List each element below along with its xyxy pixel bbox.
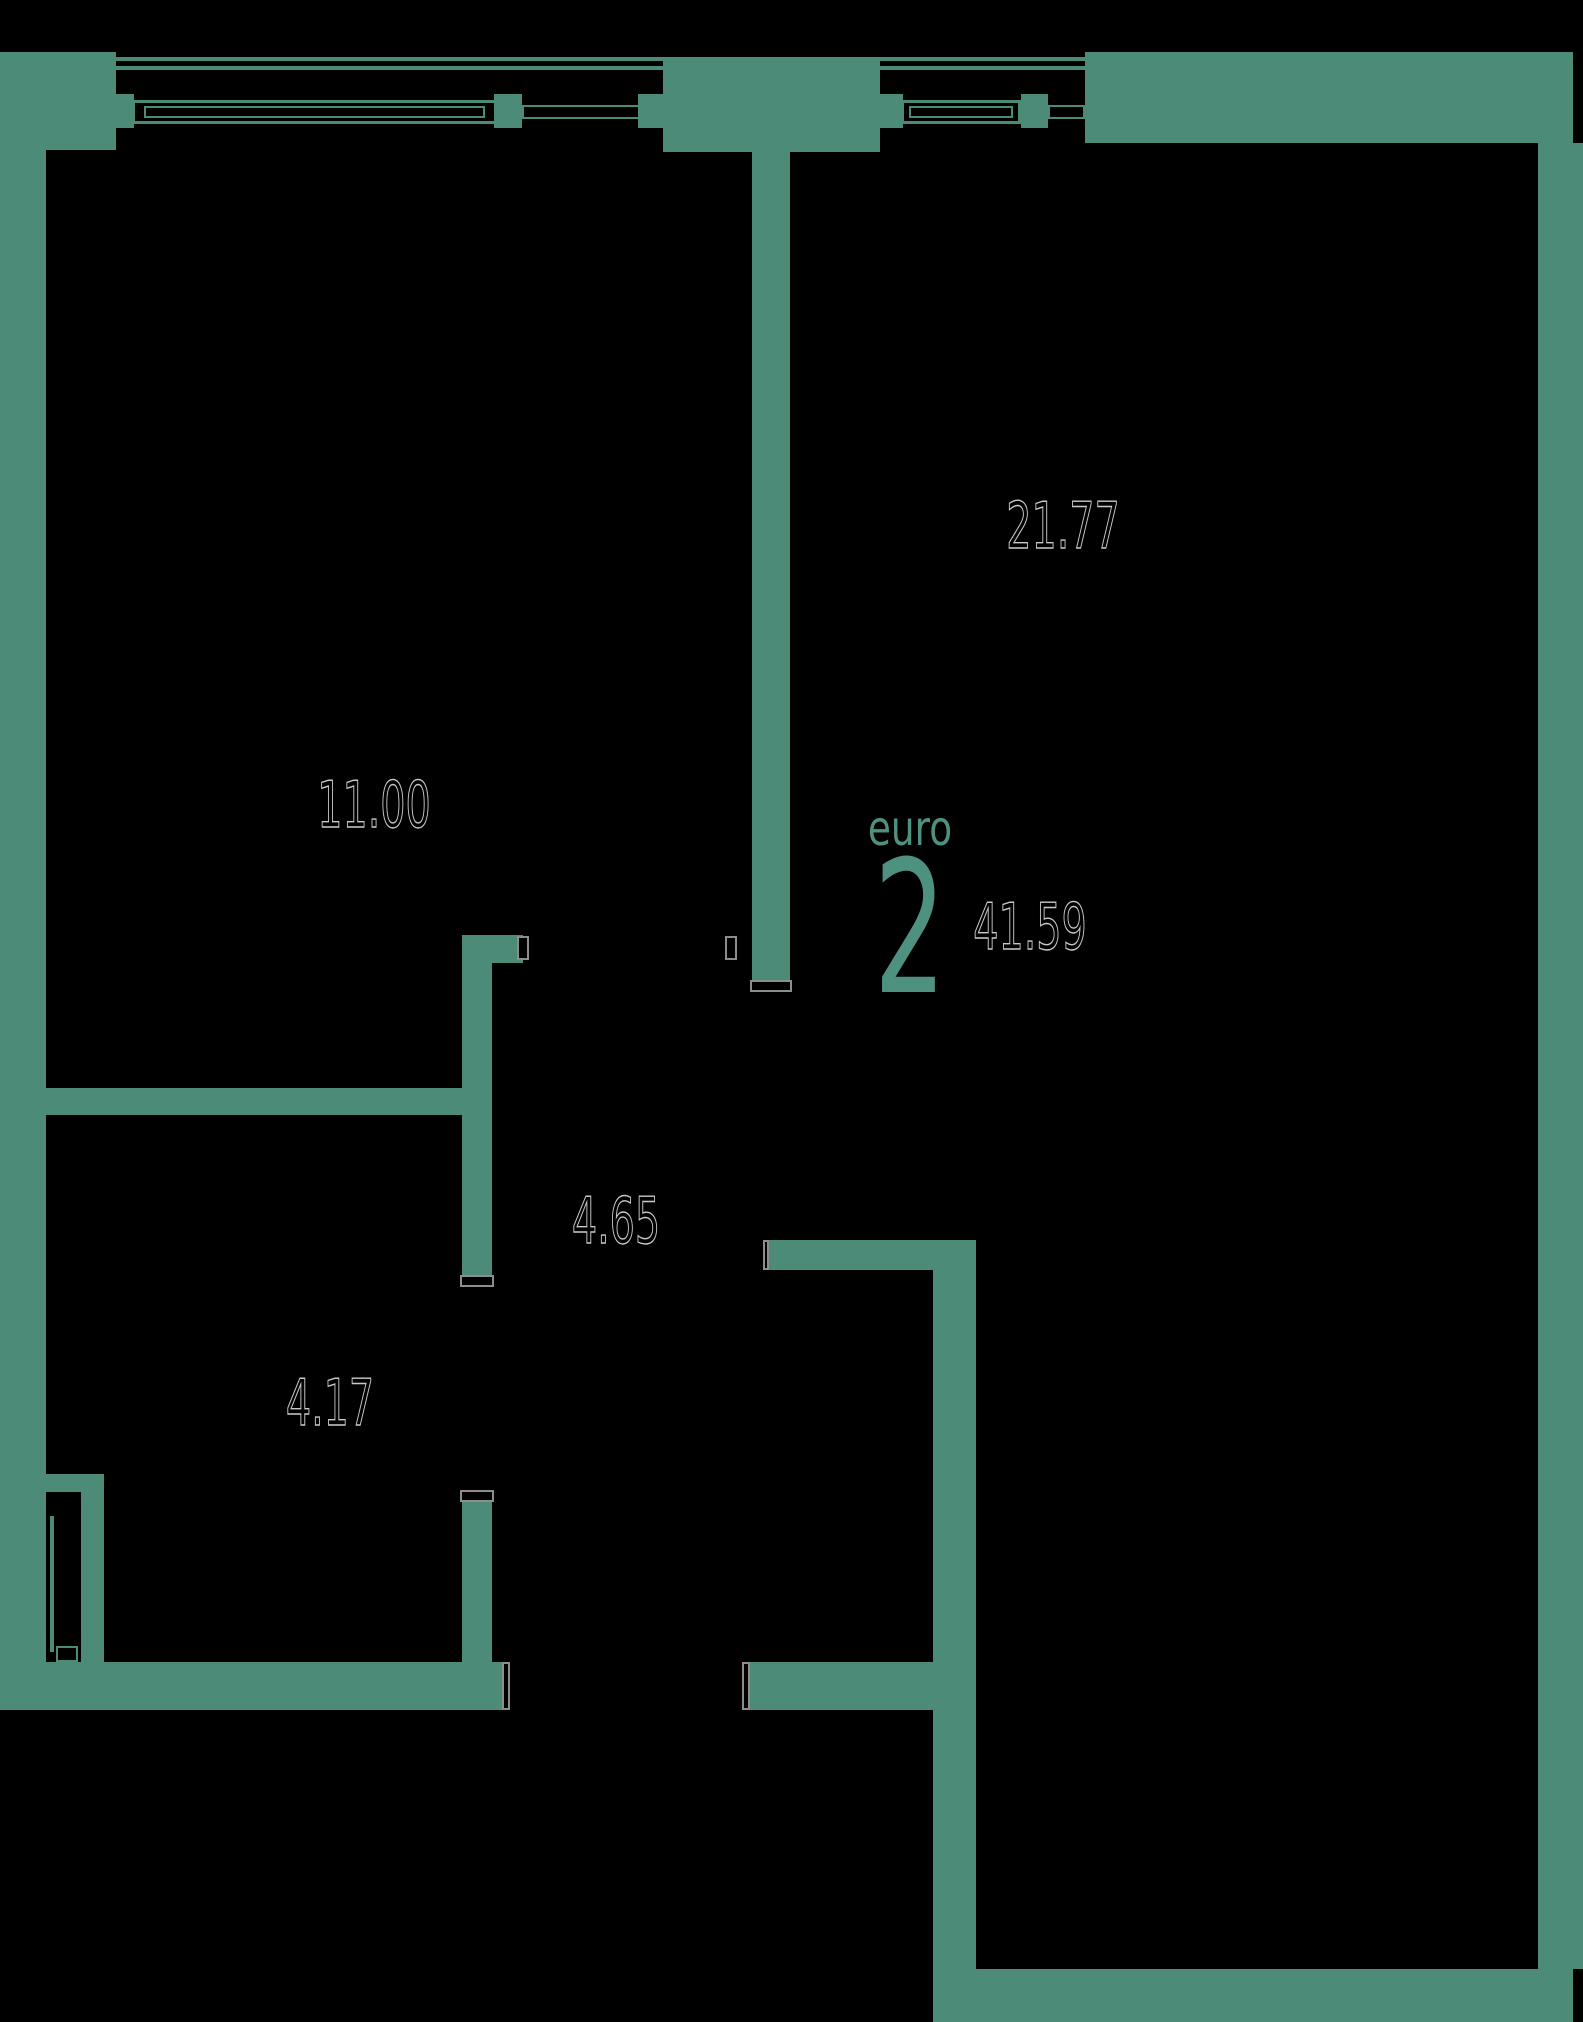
wall-top-left-corner-block xyxy=(0,52,116,150)
window-right-sash-inner xyxy=(909,106,1013,118)
door-jamb-bedroom-left xyxy=(517,936,529,960)
window-bathroom-top-stub xyxy=(46,1474,104,1492)
wall-bottom-right xyxy=(976,1969,1573,2022)
wall-bedroom-bathroom-divider xyxy=(46,1088,492,1115)
wall-bathroom-hall-cap xyxy=(462,935,523,963)
wall-bathroom-hall-lower xyxy=(462,1492,492,1662)
door-jamb-bathroom-top xyxy=(460,1275,494,1287)
window-left-sash-inner xyxy=(144,106,485,118)
wall-top-mid-pier xyxy=(663,57,880,152)
area-label-hallway: 4.65 xyxy=(572,1190,660,1254)
door-jamb-entry-right xyxy=(742,1662,750,1710)
window-right-inner-line xyxy=(880,66,1085,70)
door-jamb-entry-left xyxy=(502,1662,510,1710)
door-jamb-bathroom-bottom xyxy=(460,1490,494,1502)
total-area-label: 41.59 xyxy=(973,896,1087,960)
wall-right-outer xyxy=(1538,143,1583,1969)
wall-bottom-left xyxy=(0,1662,510,1710)
window-left-bracket-icon xyxy=(638,94,665,128)
wall-bathroom-hall-upper xyxy=(462,935,492,1285)
window-right-outer-line xyxy=(880,57,1085,61)
window-left-fixed-pane xyxy=(522,105,640,119)
window-left-outer-line xyxy=(116,57,663,61)
window-bathroom-bar xyxy=(81,1492,104,1662)
door-jamb-bedroom-right xyxy=(725,936,737,960)
window-bathroom-sill xyxy=(56,1646,78,1662)
door-jamb-divider-end xyxy=(750,980,792,992)
door-jamb-hall-band xyxy=(763,1240,769,1270)
window-right-fixed-pane xyxy=(1048,105,1085,119)
window-left-bracket-icon xyxy=(106,94,134,128)
wall-vestibule-living-divider xyxy=(933,1240,976,2022)
unit-rooms-count: 2 xyxy=(874,837,947,1021)
window-left-inner-line xyxy=(116,66,663,70)
floor-plan: 21.77 11.00 4.65 4.17 euro 2 41.59 xyxy=(0,0,1583,2022)
window-left-bracket-icon xyxy=(494,94,522,128)
area-label-bathroom: 4.17 xyxy=(286,1372,374,1436)
area-label-bedroom: 11.00 xyxy=(317,774,431,838)
wall-top-right-block xyxy=(1085,52,1573,143)
window-right-bracket-icon xyxy=(1021,94,1048,128)
area-label-living-kitchen: 21.77 xyxy=(1006,495,1120,559)
wall-bedroom-living-divider xyxy=(752,148,790,980)
window-bathroom-glass-line xyxy=(50,1516,54,1652)
wall-left-outer xyxy=(0,52,46,1710)
window-right-bracket-icon xyxy=(876,94,903,128)
